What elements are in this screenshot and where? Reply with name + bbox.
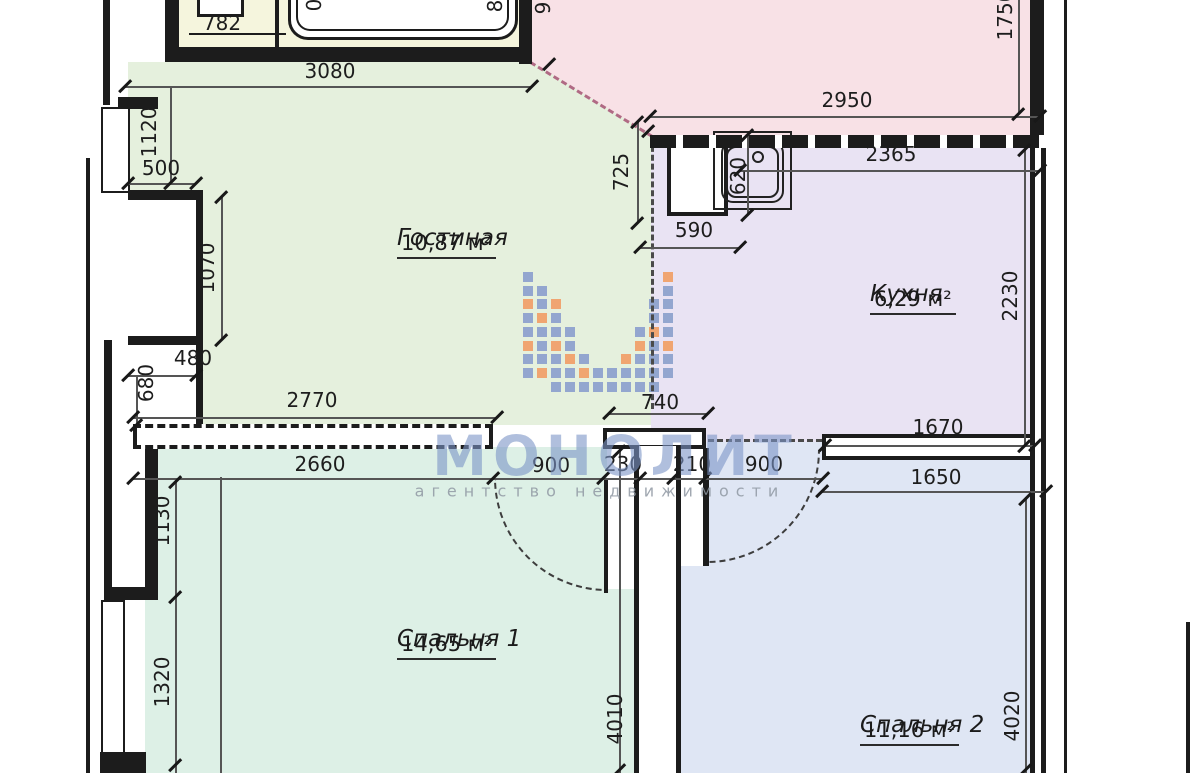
- room-area: 11,16 м²: [860, 718, 959, 746]
- logo-square: [635, 341, 645, 351]
- logo-square: [565, 354, 575, 364]
- wall: [196, 197, 203, 428]
- logo-square: [523, 299, 533, 309]
- wall: [86, 158, 90, 773]
- window: [101, 107, 130, 193]
- room-area: 14,65 м²: [397, 632, 496, 660]
- wall: [128, 190, 203, 200]
- logo-square: [663, 354, 673, 364]
- dimension-line: [640, 247, 740, 249]
- logo-square: [523, 327, 533, 337]
- dimension-line: [637, 122, 639, 223]
- dimension-line: [822, 491, 1046, 493]
- dimension-label: 1130: [152, 496, 172, 547]
- room-area: 6,29 м²: [870, 287, 956, 315]
- logo-square: [635, 327, 645, 337]
- wall-dashed: [650, 135, 1046, 148]
- logo-square: [621, 354, 631, 364]
- dimension-line: [825, 445, 1035, 447]
- watermark-logo-text: МОНОЛИТ: [432, 424, 798, 488]
- logo-square: [551, 368, 561, 378]
- logo-square: [551, 327, 561, 337]
- room-area: 10,87 м²: [397, 231, 496, 259]
- dimension-label: 2950: [822, 90, 873, 110]
- logo-square: [523, 368, 533, 378]
- logo-square: [523, 286, 533, 296]
- logo-square: [523, 313, 533, 323]
- logo-square: [607, 382, 617, 392]
- logo-square: [579, 354, 589, 364]
- dimension-label: 3080: [305, 61, 356, 81]
- logo-square: [551, 354, 561, 364]
- dimension-label: 8: [485, 0, 505, 12]
- dimension-label: 725: [611, 153, 631, 191]
- logo-square: [523, 354, 533, 364]
- dimension-label: 480: [174, 348, 212, 368]
- logo-square: [663, 341, 673, 351]
- dimension-line: [650, 116, 1040, 118]
- dimension-label: 740: [641, 392, 679, 412]
- wall: [100, 752, 146, 773]
- logo-square: [663, 368, 673, 378]
- watermark-subtitle: агентство недвижимости: [415, 482, 786, 501]
- dimension-label: 1070: [197, 243, 217, 294]
- logo-square: [621, 368, 631, 378]
- dimension-line: [125, 86, 532, 88]
- dimension-label: 782: [203, 13, 241, 33]
- logo-square: [607, 368, 617, 378]
- logo-square: [579, 368, 589, 378]
- dimension-label: 1750: [995, 0, 1015, 40]
- wall: [275, 0, 279, 47]
- logo-square: [537, 313, 547, 323]
- logo-square: [579, 382, 589, 392]
- logo-square: [523, 341, 533, 351]
- logo-square: [565, 341, 575, 351]
- logo-square: [635, 368, 645, 378]
- logo-square: [663, 272, 673, 282]
- dimension-label: 1670: [913, 417, 964, 437]
- logo-square: [635, 354, 645, 364]
- wall: [1064, 0, 1067, 773]
- dimension-line: [220, 477, 222, 773]
- dimension-label: 1320: [152, 657, 172, 708]
- dimension-label: 9: [533, 2, 553, 15]
- wall: [104, 340, 112, 600]
- logo-square: [663, 299, 673, 309]
- logo-square: [663, 327, 673, 337]
- dimension-label: 4010: [605, 694, 625, 745]
- dimension-label: 1650: [911, 467, 962, 487]
- logo-square: [663, 313, 673, 323]
- dimension-line: [740, 170, 1040, 172]
- dimension-label: 1120: [139, 107, 159, 158]
- wall: [1030, 140, 1046, 773]
- window: [101, 600, 125, 773]
- logo-square: [565, 327, 575, 337]
- dimension-line: [1024, 150, 1026, 446]
- logo-square: [565, 368, 575, 378]
- dimension-line: [133, 417, 497, 419]
- dimension-label: 0: [304, 0, 324, 11]
- dimension-label: 620: [728, 157, 748, 195]
- dimension-line: [221, 197, 223, 340]
- dimension-line: [1018, 0, 1020, 114]
- dimension-label: 4020: [1002, 691, 1022, 742]
- faucet-icon: [752, 151, 764, 163]
- logo-square: [537, 341, 547, 351]
- door-opening: [1190, 622, 1200, 773]
- wall: [128, 336, 203, 345]
- logo-square: [551, 341, 561, 351]
- dimension-label: 2660: [295, 454, 346, 474]
- logo-square: [537, 368, 547, 378]
- logo-square: [551, 382, 561, 392]
- floor-plan: Гостиная 10,87 м² Кухня 6,29 м² Спальня …: [0, 0, 1200, 773]
- logo-square: [551, 313, 561, 323]
- logo-square: [537, 354, 547, 364]
- logo-square: [537, 299, 547, 309]
- dimension-label: 2365: [866, 144, 917, 164]
- logo-square: [663, 286, 673, 296]
- wall: [1186, 622, 1190, 773]
- logo-square: [621, 382, 631, 392]
- logo-square: [565, 382, 575, 392]
- logo-square: [551, 299, 561, 309]
- kitchen-open-boundary: [651, 137, 654, 409]
- dimension-label: 2230: [1000, 271, 1020, 322]
- dimension-label: 500: [142, 158, 180, 178]
- wall: [103, 0, 110, 105]
- dimension-line: [128, 183, 196, 185]
- dimension-line: [175, 480, 177, 773]
- logo-square: [523, 272, 533, 282]
- dimension-label: 680: [136, 364, 156, 402]
- dimension-label: 2770: [287, 390, 338, 410]
- wall: [165, 0, 179, 50]
- logo-square: [537, 286, 547, 296]
- dimension-line: [1025, 497, 1027, 773]
- dimension-label: 590: [675, 220, 713, 240]
- logo-square: [593, 382, 603, 392]
- logo-square: [537, 327, 547, 337]
- bathtub-rim: [296, 0, 509, 31]
- logo-square: [593, 368, 603, 378]
